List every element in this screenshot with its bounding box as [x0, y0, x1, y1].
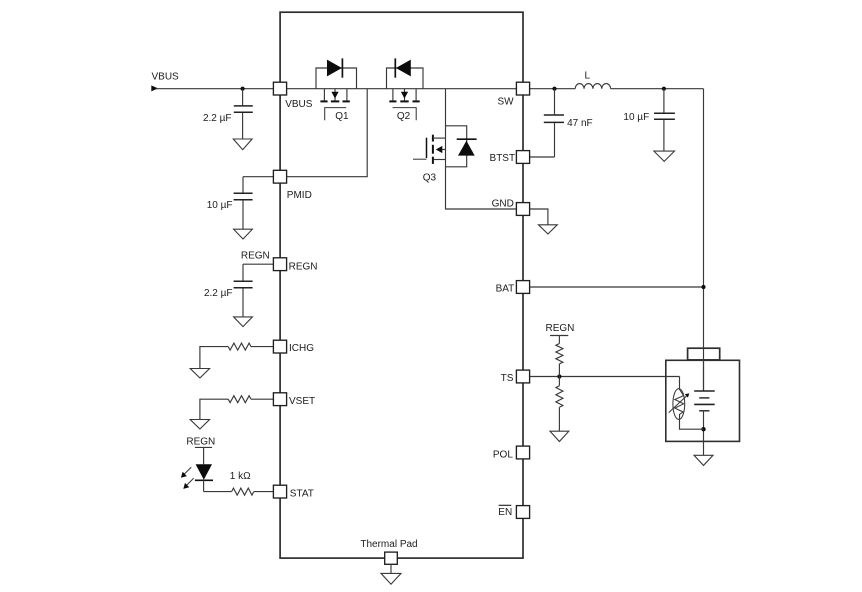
svg-text:REGN: REGN [186, 436, 215, 447]
svg-text:10 µF: 10 µF [623, 112, 649, 123]
svg-text:ICHG: ICHG [289, 343, 314, 354]
svg-text:VSET: VSET [289, 396, 315, 407]
svg-text:PMID: PMID [287, 190, 312, 201]
svg-text:REGN: REGN [289, 262, 318, 273]
svg-text:REGN: REGN [241, 250, 270, 261]
svg-text:Q1: Q1 [335, 111, 349, 122]
svg-text:Thermal Pad: Thermal Pad [360, 539, 417, 550]
svg-text:Q2: Q2 [397, 111, 411, 122]
svg-text:L: L [585, 71, 591, 82]
svg-text:10 µF: 10 µF [207, 200, 233, 211]
svg-text:Q3: Q3 [423, 172, 437, 183]
svg-text:VBUS: VBUS [152, 72, 180, 83]
svg-text:REGN: REGN [546, 323, 575, 334]
svg-text:BAT: BAT [496, 284, 515, 295]
svg-text:BTST: BTST [490, 153, 516, 164]
svg-text:VBUS: VBUS [285, 99, 313, 110]
svg-text:2.2 µF: 2.2 µF [203, 113, 232, 124]
svg-text:STAT: STAT [290, 489, 314, 500]
svg-text:1 kΩ: 1 kΩ [230, 471, 251, 482]
svg-text:47 nF: 47 nF [567, 118, 593, 129]
svg-text:POL: POL [493, 450, 513, 461]
svg-text:SW: SW [497, 96, 514, 107]
svg-text:2.2 µF: 2.2 µF [204, 288, 233, 299]
svg-text:GND: GND [492, 199, 514, 210]
svg-text:EN: EN [498, 507, 512, 518]
svg-text:TS: TS [501, 373, 514, 384]
